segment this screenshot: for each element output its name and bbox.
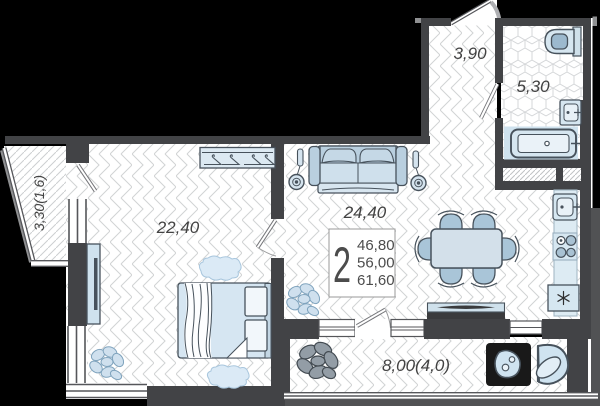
svg-text:61,60: 61,60: [357, 272, 395, 289]
svg-text:22,40: 22,40: [156, 218, 200, 237]
svg-text:2: 2: [333, 237, 351, 293]
svg-text:3,90: 3,90: [453, 44, 487, 63]
svg-text:3,30(1,6): 3,30(1,6): [31, 175, 47, 231]
svg-text:5,30: 5,30: [516, 77, 550, 96]
svg-text:8,00(4,0): 8,00(4,0): [382, 356, 450, 375]
svg-text:46,80: 46,80: [357, 237, 395, 254]
svg-text:24,40: 24,40: [343, 203, 387, 222]
svg-text:56,00: 56,00: [357, 255, 395, 272]
